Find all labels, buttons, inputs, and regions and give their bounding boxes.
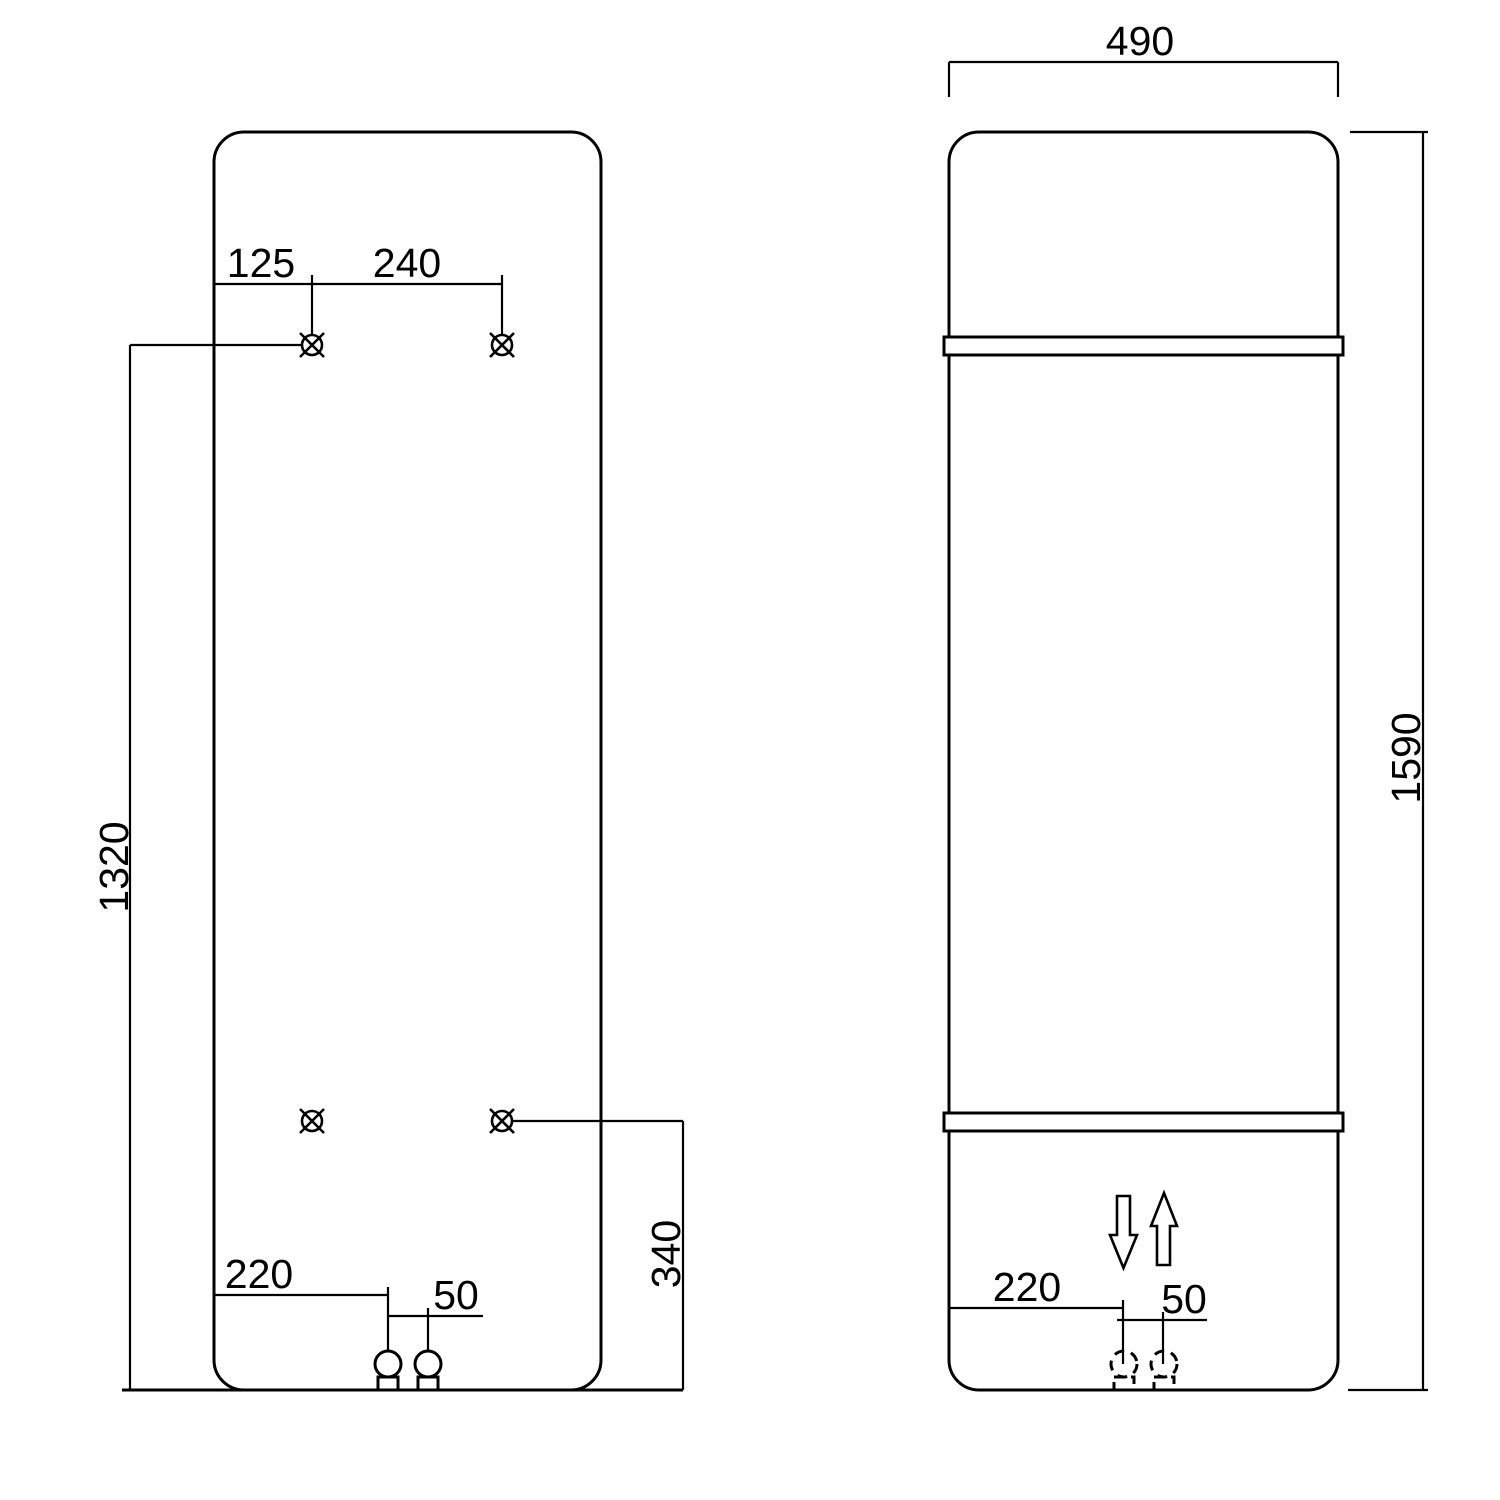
rear-mount-height-dimension: 1320 [91,345,301,1390]
dim-label-overall-height: 1590 [1383,712,1429,803]
front-height-dimension: 1590 [1348,132,1429,1390]
dim-label-top-hole-offset: 125 [227,240,295,286]
front-view: 490 1590 220 50 [944,18,1429,1390]
collector-bar-bottom [944,1113,1343,1131]
dim-label-mount-height: 1320 [91,821,137,912]
front-panel-outline [949,132,1338,1390]
rear-top-dimension: 125 240 [214,240,502,334]
mounting-point-icon [490,1109,514,1133]
front-width-dimension: 490 [949,18,1338,97]
flow-down-arrow-icon [1110,1196,1137,1268]
flow-up-arrow-icon [1151,1193,1177,1265]
dim-label-top-hole-spacing: 240 [373,240,441,286]
pipe-connection-icon [375,1351,401,1390]
dim-label-pipe-spacing: 50 [1161,1276,1207,1322]
dim-label-pipe-offset: 220 [225,1251,293,1297]
mounting-point-icon [490,333,514,357]
mounting-point-icon [300,333,324,357]
rear-panel-outline [214,132,601,1390]
mounting-point-icon [300,1109,324,1133]
pipe-connection-icon [415,1351,441,1390]
drawing-canvas: 125 240 1320 [0,0,1500,1500]
rear-view: 125 240 1320 [91,132,689,1390]
collector-bar-top [944,337,1343,355]
dim-label-pipe-spacing: 50 [433,1272,479,1318]
dim-label-pipe-offset: 220 [993,1264,1061,1310]
dim-label-lower-mount-height: 340 [643,1220,689,1288]
technical-drawing: 125 240 1320 [0,0,1500,1500]
rear-pipe-dimension: 220 50 [214,1251,483,1364]
front-pipe-dimension: 220 50 [949,1264,1207,1364]
dim-label-overall-width: 490 [1106,18,1174,64]
